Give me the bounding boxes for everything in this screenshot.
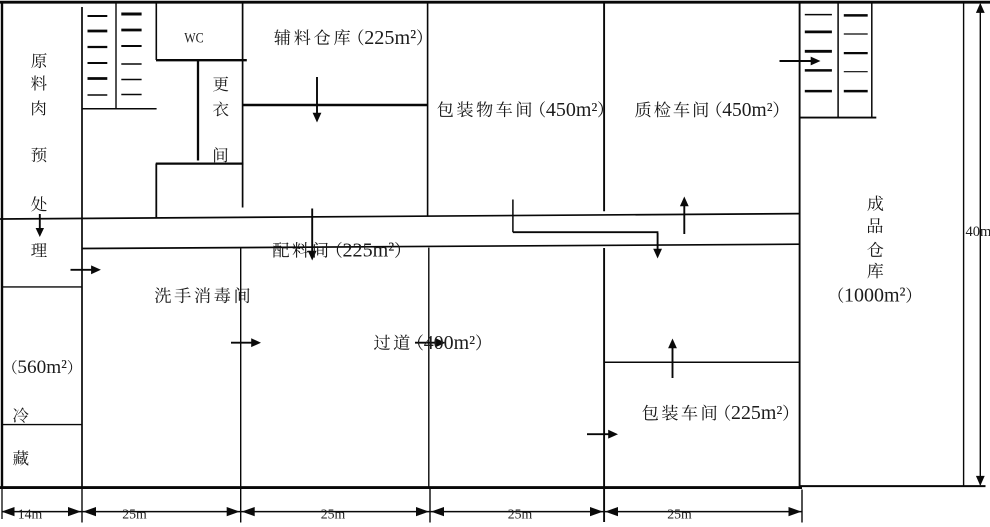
svg-text:225m²: 225m² (343, 239, 395, 261)
svg-text:WC: WC (184, 31, 204, 47)
svg-text:1000m²: 1000m² (844, 284, 906, 306)
svg-text:40m: 40m (966, 224, 990, 240)
svg-text:25m: 25m (321, 507, 346, 522)
svg-text:25m: 25m (667, 507, 692, 522)
svg-text:225m²: 225m² (731, 402, 782, 424)
svg-text:225m²: 225m² (364, 27, 416, 49)
svg-text:25m: 25m (508, 507, 533, 522)
svg-text:450m²: 450m² (546, 99, 598, 121)
svg-text:14m: 14m (18, 507, 43, 522)
svg-text:450m²: 450m² (722, 100, 772, 121)
svg-text:25m: 25m (122, 507, 147, 522)
svg-text:400m²: 400m² (424, 332, 475, 354)
svg-text:560m²: 560m² (17, 357, 67, 378)
